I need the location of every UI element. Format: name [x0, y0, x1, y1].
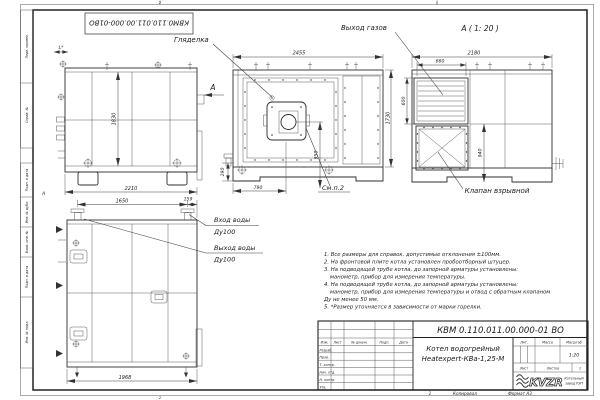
dim-600-label: 600: [401, 97, 407, 106]
tb-row-utv: Утв.: [320, 385, 327, 389]
panel-bolt-dots: [344, 87, 378, 158]
margin-label-podp-data-2: Подп. и дата: [25, 266, 29, 288]
dim-790-label: 790: [254, 185, 263, 191]
footer-num: 1: [429, 391, 432, 396]
view-front: Гляделка См.п.2 2455 1730 950 790 290: [174, 36, 394, 194]
sheet-frame: 2 1 2 А: [21, 1, 594, 400]
dim-159-label: 159: [184, 197, 193, 203]
tb-row-nkontr: Н. контр.: [320, 378, 336, 382]
drawing-sheet: 2 1 2 А Перв. примен. Справ. № Подп. и д…: [0, 0, 600, 400]
label-gas-outlet: Выход газов: [341, 24, 387, 32]
tb-sheets-value: 1: [579, 367, 581, 371]
view-title-a-1-20: А ( 1: 20 ): [460, 24, 498, 33]
tb-row-prov: Пров.: [320, 356, 330, 360]
dim-950-label: 950: [314, 151, 320, 160]
logo-waves-icon: [517, 375, 529, 380]
top-doc-stamp: КВМ0.110.011.00.000-01ВО: [85, 13, 193, 34]
zone-mark-top-left: 2: [159, 1, 162, 5]
burner-plate: [264, 102, 310, 140]
tb-row-nachotd: Нач. отд.: [320, 371, 336, 375]
dim-1830-label: 1830: [112, 113, 118, 126]
dim-2210-label: 2210: [125, 186, 138, 192]
tb-row-tkontr: Т. контр.: [320, 363, 335, 367]
note-line-1: 1. Все размеры для справок, допустимые о…: [324, 252, 501, 258]
explosion-valve: [416, 126, 468, 170]
view-side-bottom: 1650 159 1968 Вход воды Ду100 Выход воды…: [56, 197, 263, 385]
note-line-4: 4. На подводящей трубе котла, до запорно…: [324, 282, 518, 288]
label-note-ref: См.п.2: [322, 184, 344, 192]
dim-290-label: 290: [220, 168, 226, 177]
top-doc-stamp-text: КВМ0.110.011.00.000-01ВО: [89, 19, 189, 27]
gas-outlet: [414, 78, 468, 124]
zone-mark-top-right: 1: [436, 1, 438, 5]
tb-col-doc: № докум.: [350, 341, 367, 345]
logo-caption-line1: Котельный: [564, 377, 584, 381]
footer-copy-label: Копировал: [453, 391, 477, 396]
footer-marks: 1 Копировал Формат А3: [429, 391, 533, 396]
tb-scale-value: 1:20: [569, 353, 579, 359]
label-water-out: Выход воды: [214, 244, 255, 252]
dim-1650-label: 1650: [116, 199, 129, 205]
margin-label-vzam-inv: Взам. инв. №: [25, 230, 29, 253]
note-line-3b: манометр, прибор для измерения температу…: [330, 275, 466, 281]
label-sight-glass: Гляделка: [174, 36, 209, 44]
note-line-5: 5. *Размер уточняется в зависимости от м…: [324, 305, 482, 311]
margin-label-inv-podl: Инв. № подл.: [25, 321, 29, 344]
label-water-in-dn: Ду100: [213, 228, 235, 236]
manufacturer-logo: KVZR Котельный завод РЭП: [517, 375, 585, 389]
label-water-out-dn: Ду100: [213, 256, 235, 264]
view-rear: 2180 660 600 940 Выход газов А ( 1: 20 )…: [341, 24, 563, 195]
note-line-4b: манометр, прибор для измерения температу…: [330, 290, 550, 296]
margin-label-perv-primen: Перв. примен.: [25, 34, 29, 59]
tb-product-line2: Heatexpert-КВа-1,25-М: [422, 355, 505, 363]
view-side-top: 1830 2210 L* А: [54, 45, 224, 195]
footer-format-label: Формат А3: [508, 391, 532, 396]
tb-sheet-label: Лист: [519, 367, 528, 371]
tb-col-list: Лист: [332, 341, 341, 345]
margin-label-podp-data-1: Подп. и дата: [25, 169, 29, 191]
door-bolt-dots: [244, 79, 336, 160]
note-line-4c: Ду не менее 50 мм.: [323, 297, 378, 303]
dim-940-label: 940: [478, 149, 484, 158]
title-block: Изм. Лист № докум. Подп. Дата Разраб. Пр…: [318, 321, 588, 390]
logo-text: KVZR: [529, 376, 562, 389]
dim-l-star-label: L*: [59, 45, 65, 51]
zone-mark-bottom: 2: [159, 396, 162, 400]
zone-letter: А: [41, 191, 45, 197]
logo-caption-line2: завод РЭП: [565, 382, 583, 386]
tb-product-line1: Котел водогрейный: [426, 345, 500, 353]
note-line-2: 2. На фронтовой плите котла установлен п…: [324, 260, 511, 266]
tb-col-izm: Изм.: [321, 341, 329, 345]
tb-doc-number: КВМ 0.110.011.00.000-01 ВО: [437, 326, 564, 336]
tb-row-razrab: Разраб.: [320, 348, 333, 352]
dim-2180-label: 2180: [468, 51, 481, 57]
dim-1730-label: 1730: [386, 112, 392, 125]
tb-mass-label: Масса: [542, 341, 553, 345]
tb-col-data: Дата: [398, 341, 408, 345]
water-inlet-pipe: [181, 209, 194, 220]
engineering-drawing-canvas: 2 1 2 А Перв. примен. Справ. № Подп. и д…: [0, 0, 600, 400]
water-outlet-pipe: [71, 209, 84, 220]
margin-stamp-column: Перв. примен. Справ. № Подп. и дата Инв.…: [21, 10, 34, 368]
label-explosion-valve: Клапан взрывной: [465, 187, 530, 195]
dim-1968-label: 1968: [119, 375, 132, 381]
tb-scale-label: Масштаб: [566, 341, 582, 345]
margin-label-sprav: Справ. №: [25, 106, 29, 123]
dim-660-label: 660: [436, 59, 445, 65]
tb-sheets-label: Листов: [546, 367, 559, 371]
dim-2455-label: 2455: [293, 51, 306, 57]
tb-lit-label: Лит.: [519, 341, 528, 345]
tb-col-podp: Подп.: [380, 341, 390, 345]
view-arrow-a-label: А: [209, 83, 215, 92]
rear-pipe-stub: [552, 157, 563, 170]
notes-block: 1. Все размеры для справок, допустимые о…: [323, 252, 550, 311]
note-line-3: 3. На подводящей трубе котла, до запорно…: [324, 267, 518, 273]
sight-glass: [270, 96, 274, 100]
margin-label-inv-dubl: Инв. № дубл.: [25, 201, 29, 224]
label-water-in: Вход воды: [214, 216, 250, 224]
